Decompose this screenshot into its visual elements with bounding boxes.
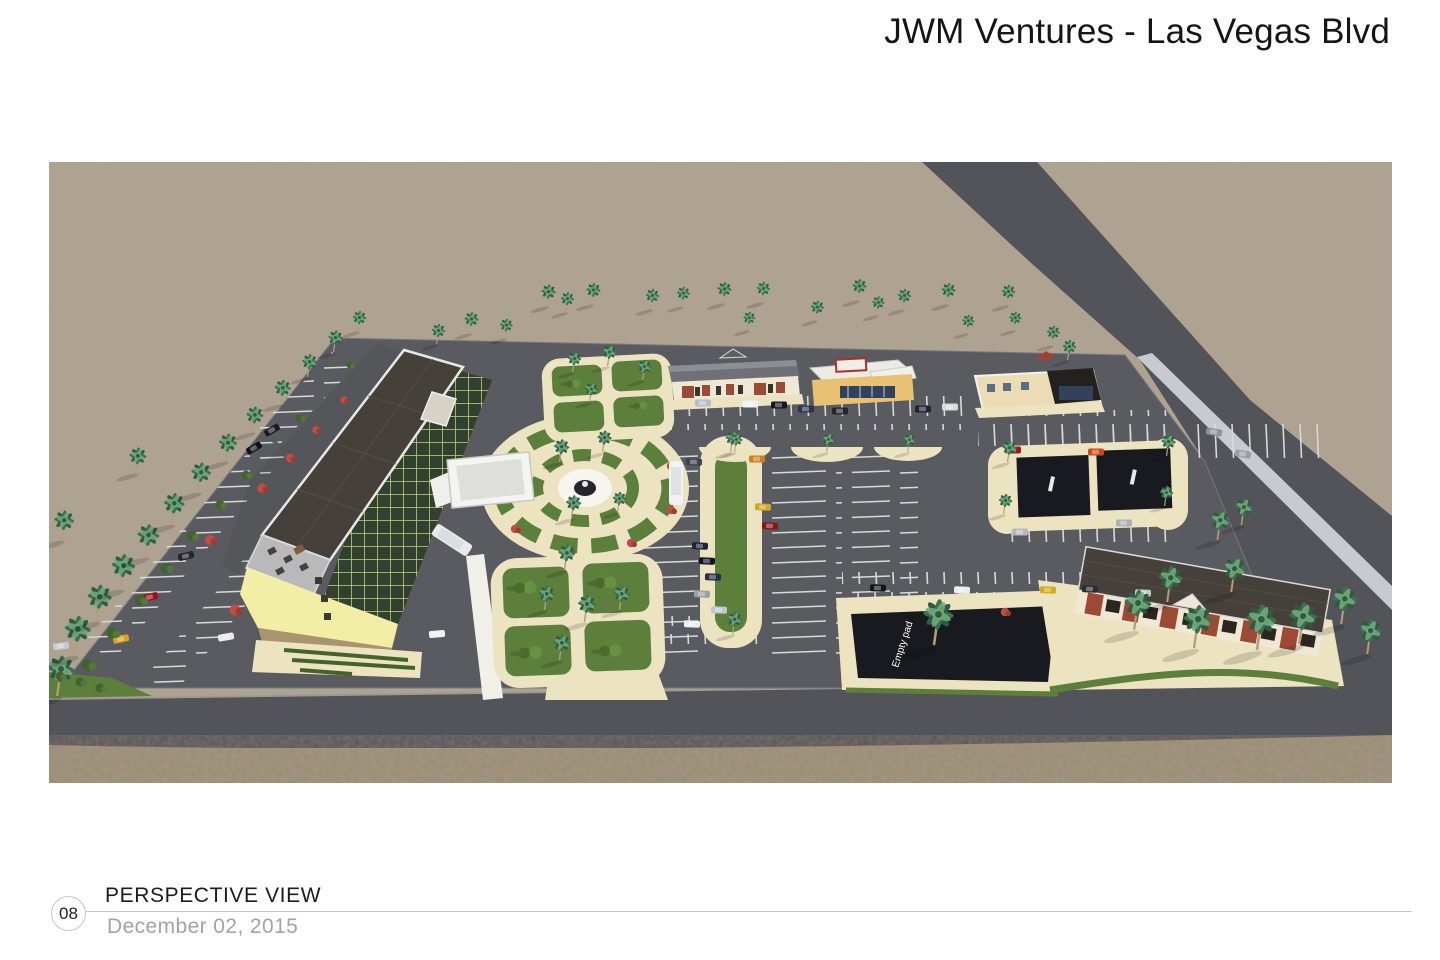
date-label: December 02, 2015 xyxy=(107,915,298,939)
roof-skylight xyxy=(836,358,867,372)
empty-pad: Empty pad xyxy=(836,590,1066,694)
page-number-badge: 08 xyxy=(51,896,86,931)
page-title: JWM Ventures - Las Vegas Blvd xyxy=(884,12,1390,52)
presentation-sheet: JWM Ventures - Las Vegas Blvd xyxy=(0,0,1440,960)
perspective-rendering: Empty pad xyxy=(49,162,1392,783)
view-label: PERSPECTIVE VIEW xyxy=(105,884,321,908)
garden-court-north xyxy=(541,353,675,444)
truck xyxy=(669,461,683,505)
page-number: 08 xyxy=(59,904,78,924)
garden-court-south xyxy=(490,553,666,689)
footer-rule xyxy=(85,911,1412,912)
